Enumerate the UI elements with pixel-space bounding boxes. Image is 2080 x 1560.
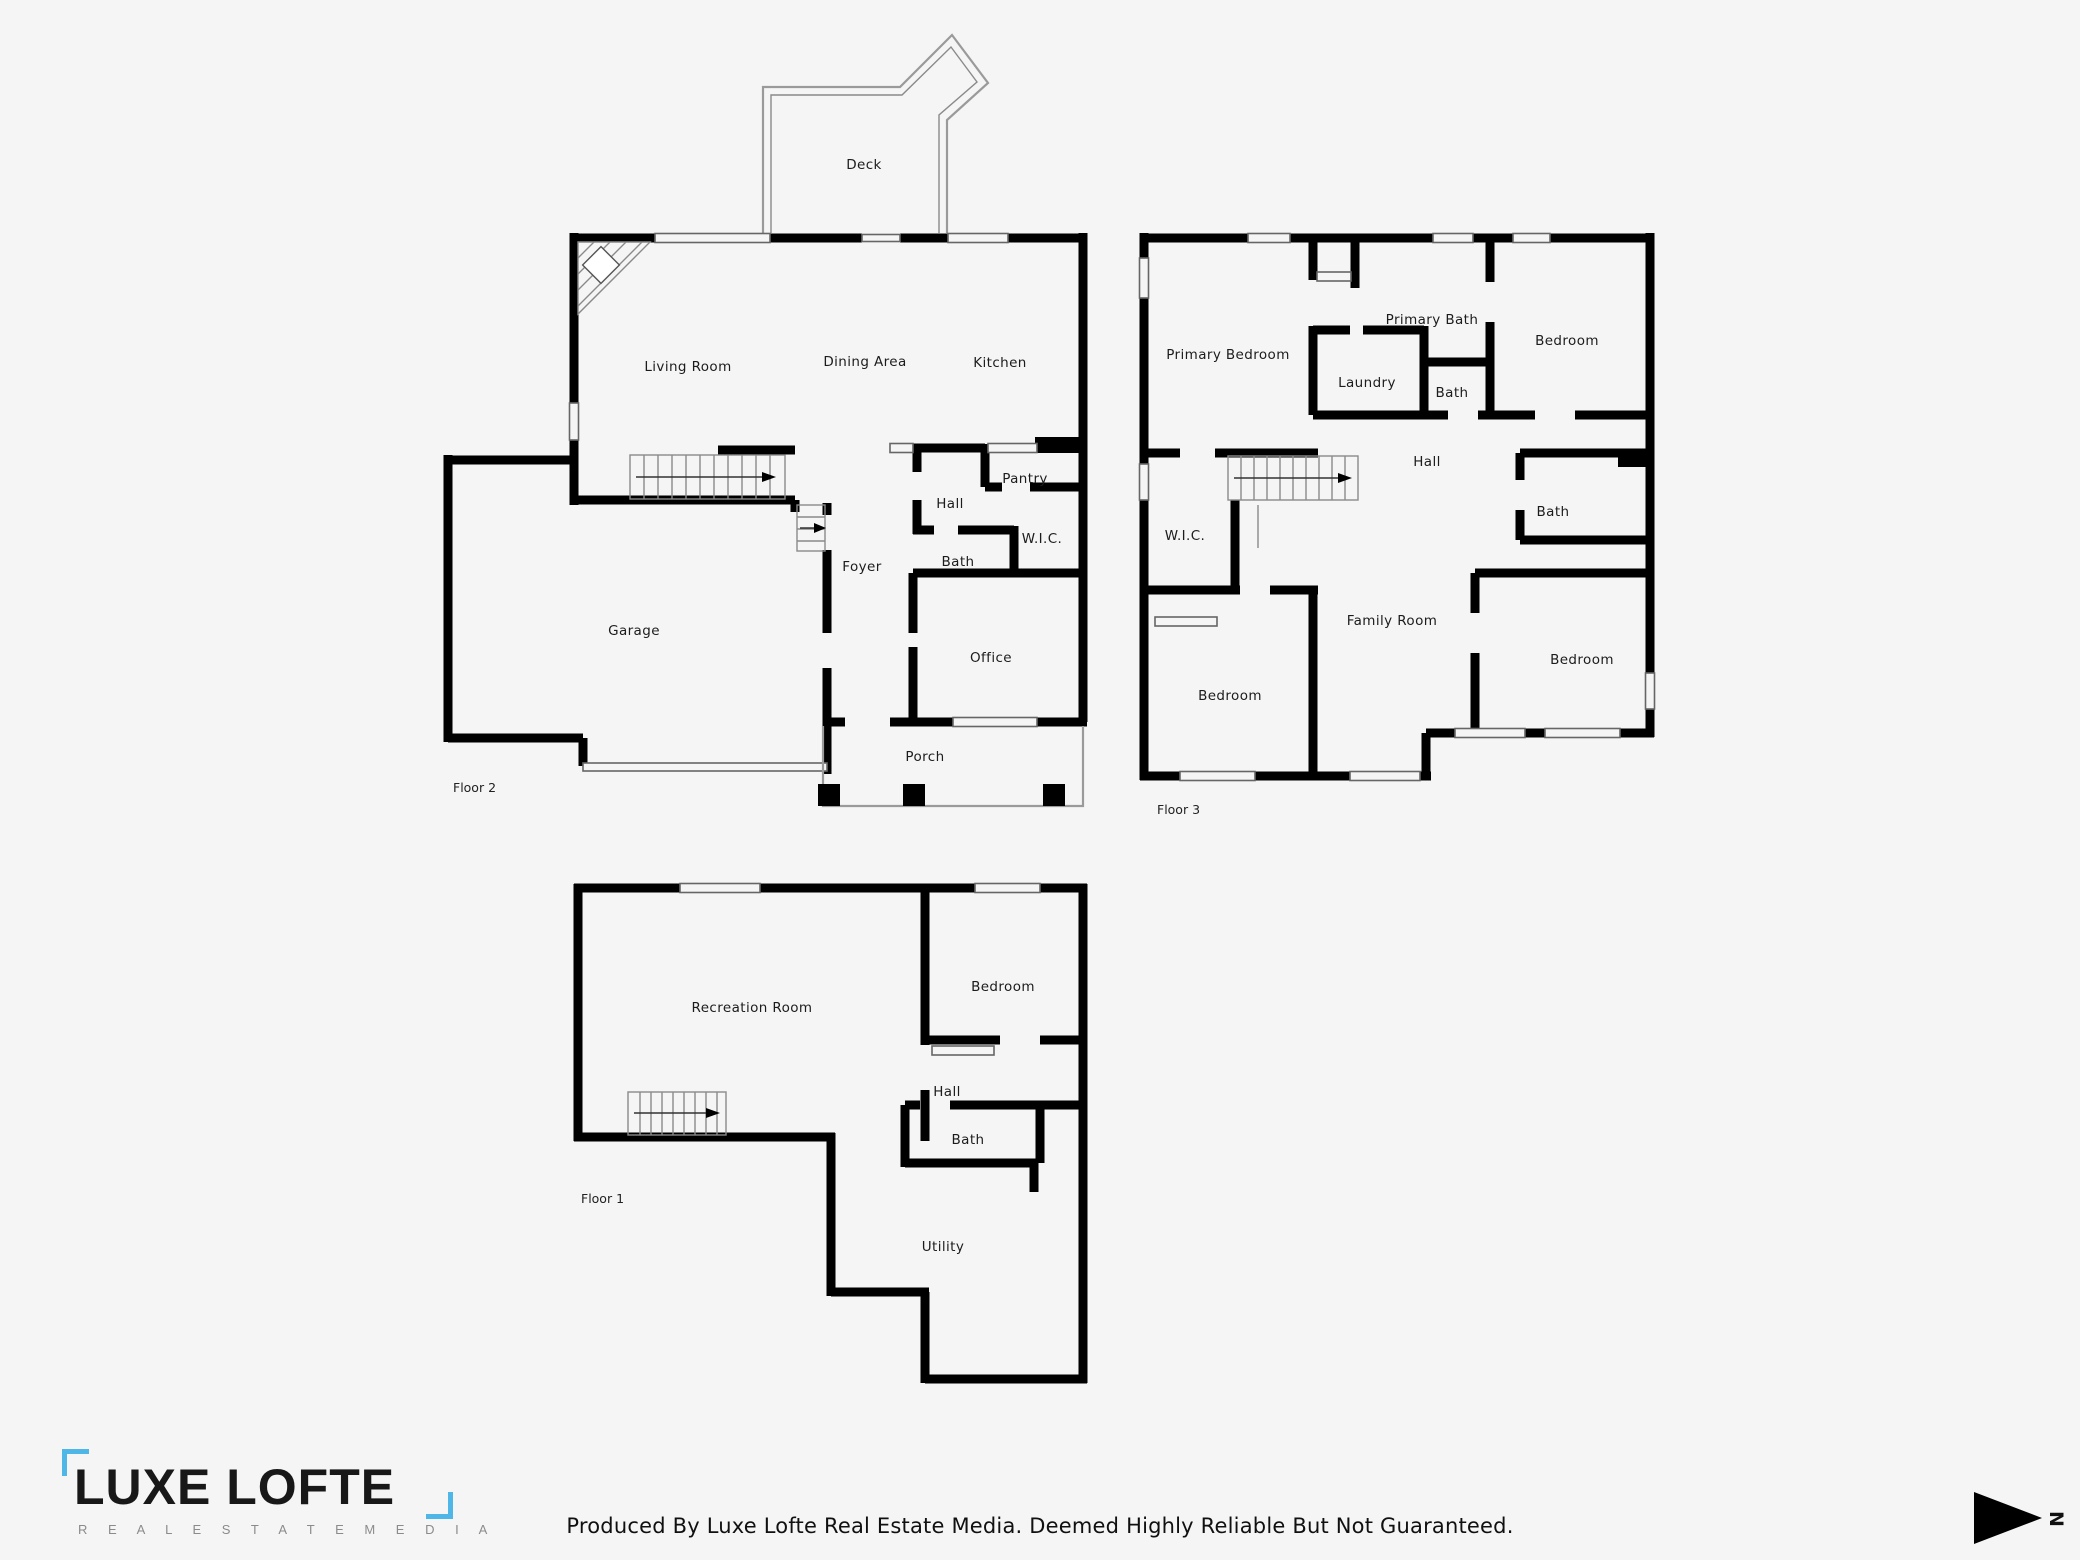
room-label-primary-bath: Primary Bath bbox=[1386, 312, 1479, 328]
opening bbox=[890, 444, 913, 453]
room-label-primary-bedroom: Primary Bedroom bbox=[1166, 347, 1290, 363]
room-label-bedroom-bottom-right: Bedroom bbox=[1550, 652, 1614, 668]
porch-pillar bbox=[1043, 784, 1065, 806]
window bbox=[680, 884, 760, 893]
logo-bracket-top-left-icon bbox=[62, 1449, 89, 1476]
window bbox=[1455, 729, 1525, 738]
disclaimer-text: Produced By Luxe Lofte Real Estate Media… bbox=[0, 1514, 2080, 1538]
stair-direction-arrow bbox=[762, 472, 776, 482]
window bbox=[570, 403, 579, 440]
porch-structure bbox=[818, 726, 1083, 806]
window bbox=[1248, 234, 1290, 243]
room-label-hall: Hall bbox=[936, 496, 964, 512]
staircase-floor-3 bbox=[1228, 456, 1358, 500]
bath-wall-notch bbox=[1618, 453, 1650, 467]
floor-1-plan: Recreation Room Bedroom Hall Bath Utilit… bbox=[574, 884, 1087, 1384]
garage-door bbox=[583, 763, 827, 771]
floorplan-page: Deck Living Room Dining Area Kitchen Pan… bbox=[0, 0, 2080, 1560]
closet-doors bbox=[932, 1046, 994, 1055]
floorplan-canvas: Deck Living Room Dining Area Kitchen Pan… bbox=[0, 0, 2080, 1560]
room-label-deck: Deck bbox=[846, 157, 882, 173]
staircase-floor-2 bbox=[630, 455, 785, 499]
porch-pillar bbox=[903, 784, 925, 806]
room-label-utility: Utility bbox=[922, 1239, 965, 1255]
stair-direction-arrow bbox=[814, 523, 826, 533]
window bbox=[1350, 772, 1420, 781]
room-label-hall: Hall bbox=[1413, 454, 1441, 470]
window bbox=[953, 718, 1037, 727]
fireplace bbox=[578, 242, 650, 314]
room-label-kitchen: Kitchen bbox=[973, 355, 1027, 371]
window bbox=[1513, 234, 1550, 243]
window bbox=[655, 234, 770, 243]
pantry-opening bbox=[988, 444, 1037, 453]
floor-2-label: Floor 2 bbox=[453, 780, 496, 795]
window bbox=[1646, 673, 1655, 709]
room-label-porch: Porch bbox=[905, 749, 944, 765]
room-label-bedroom: Bedroom bbox=[971, 979, 1035, 995]
room-label-office: Office bbox=[970, 650, 1012, 666]
porch-pillar bbox=[818, 784, 840, 806]
window bbox=[1140, 258, 1149, 298]
room-label-hall: Hall bbox=[933, 1084, 961, 1100]
closet-doors bbox=[1155, 617, 1217, 626]
window bbox=[1545, 729, 1620, 738]
staircase-floor-1 bbox=[628, 1092, 726, 1135]
pantry-wall-notch bbox=[1035, 437, 1083, 453]
closet-doors bbox=[1317, 272, 1351, 281]
room-label-garage: Garage bbox=[608, 623, 660, 639]
room-label-bath-top: Bath bbox=[1436, 385, 1469, 401]
steps-to-foyer bbox=[797, 505, 826, 551]
room-label-bedroom-bottom-left: Bedroom bbox=[1198, 688, 1262, 704]
deck-door bbox=[862, 235, 900, 242]
window bbox=[1140, 464, 1149, 500]
room-label-bath: Bath bbox=[952, 1132, 985, 1148]
window bbox=[1180, 772, 1255, 781]
room-label-family-room: Family Room bbox=[1347, 613, 1438, 629]
room-label-foyer: Foyer bbox=[842, 559, 881, 575]
room-label-bedroom-top-right: Bedroom bbox=[1535, 333, 1599, 349]
floor-2-walls bbox=[448, 233, 1087, 774]
window bbox=[975, 884, 1040, 893]
floor-1-label: Floor 1 bbox=[581, 1191, 624, 1206]
window bbox=[948, 234, 1008, 243]
room-label-dining-area: Dining Area bbox=[823, 354, 906, 370]
logo-wordmark: LUXE LOFTE bbox=[74, 1458, 474, 1516]
room-label-bath: Bath bbox=[942, 554, 975, 570]
room-label-wic: W.I.C. bbox=[1165, 528, 1205, 544]
room-label-bath-mid: Bath bbox=[1537, 504, 1570, 520]
stair-direction-arrow bbox=[706, 1108, 720, 1118]
floor-2-plan: Deck Living Room Dining Area Kitchen Pan… bbox=[448, 35, 1087, 806]
deck-outline bbox=[763, 35, 988, 233]
room-label-pantry: Pantry bbox=[1002, 471, 1048, 487]
room-label-wic: W.I.C. bbox=[1022, 531, 1062, 547]
floor-3-plan: Primary Bedroom Primary Bath Laundry Bat… bbox=[1140, 233, 1655, 817]
floor-3-label: Floor 3 bbox=[1157, 802, 1200, 817]
room-label-laundry: Laundry bbox=[1338, 375, 1396, 391]
room-label-living-room: Living Room bbox=[644, 359, 731, 375]
room-label-recreation-room: Recreation Room bbox=[692, 1000, 813, 1016]
window bbox=[1433, 234, 1473, 243]
